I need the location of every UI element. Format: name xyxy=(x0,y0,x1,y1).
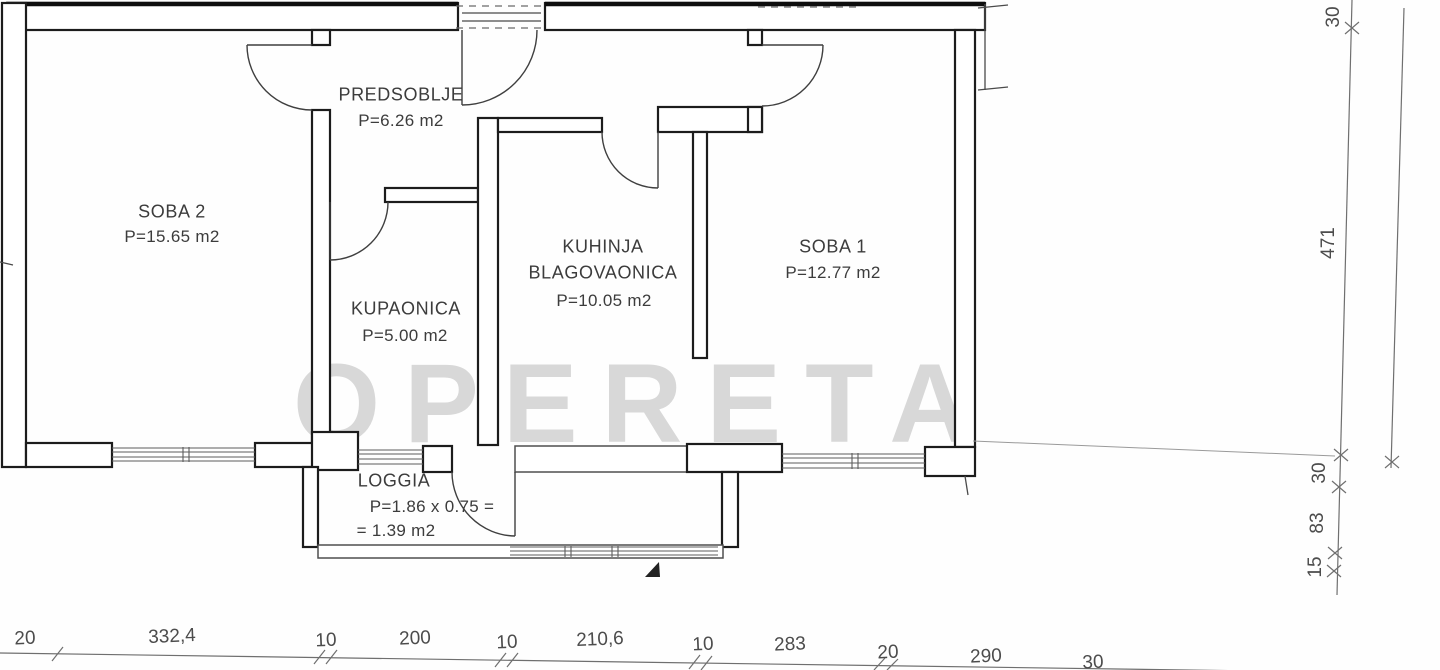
dimension-label: 10 xyxy=(315,630,337,653)
door-soba2 xyxy=(247,45,312,110)
window-soba1 xyxy=(782,453,925,469)
door-kupaonica xyxy=(330,202,388,260)
room-label-predsoblje: PREDSOBLJE xyxy=(338,85,463,106)
room-area-predsoblje: P=6.26 m2 xyxy=(358,111,443,131)
bottom-ticks xyxy=(52,647,898,670)
window-kupaonica xyxy=(358,450,423,464)
dimension-label: 200 xyxy=(399,627,432,650)
dimension-label: 283 xyxy=(774,633,807,656)
dimension-label: 10 xyxy=(692,634,714,657)
door-soba1 xyxy=(762,45,823,106)
room-area-kuhinja: P=10.05 m2 xyxy=(556,291,651,311)
section-arrow-icon xyxy=(645,562,660,577)
dimension-label: 332,4 xyxy=(148,625,196,649)
dimension-label: 20 xyxy=(14,628,36,651)
dimension-label: 471 xyxy=(1318,227,1340,259)
room-area-kupaonica: P=5.00 m2 xyxy=(362,326,447,346)
dimension-label: 290 xyxy=(970,645,1003,668)
dimension-label: 83 xyxy=(1307,512,1329,533)
room-area-soba2: P=15.65 m2 xyxy=(124,227,219,247)
room-label-loggia: LOGGIA xyxy=(358,471,431,492)
dimension-label: 30 xyxy=(1309,462,1331,483)
window-soba2 xyxy=(112,447,255,462)
room-label-soba2: SOBA 2 xyxy=(138,202,206,223)
dimension-label: 15 xyxy=(1305,556,1327,577)
room-area-loggia-2: = 1.39 m2 xyxy=(357,521,436,541)
room-label-kuhinja: KUHINJA xyxy=(562,237,643,258)
floor-plan-drawing xyxy=(0,0,1440,670)
room-label-kuhinja-2: BLAGOVAONICA xyxy=(529,263,678,284)
room-label-kupaonica: KUPAONICA xyxy=(351,299,461,320)
room-area-loggia: P=1.86 x 0.75 = xyxy=(370,497,495,517)
door-entrance xyxy=(456,6,547,105)
room-area-soba1: P=12.77 m2 xyxy=(785,263,880,283)
floor-plan-page: OPERETA xyxy=(0,0,1440,670)
dimension-label: 30 xyxy=(1082,652,1104,670)
right-ticks xyxy=(1327,22,1359,577)
room-label-soba1: SOBA 1 xyxy=(799,237,867,258)
dimension-label: 20 xyxy=(877,642,899,665)
dimension-label: 210,6 xyxy=(576,628,624,652)
dimension-label: 10 xyxy=(496,632,518,655)
dimension-label: 30 xyxy=(1323,6,1345,27)
door-kuhinja xyxy=(602,132,658,188)
